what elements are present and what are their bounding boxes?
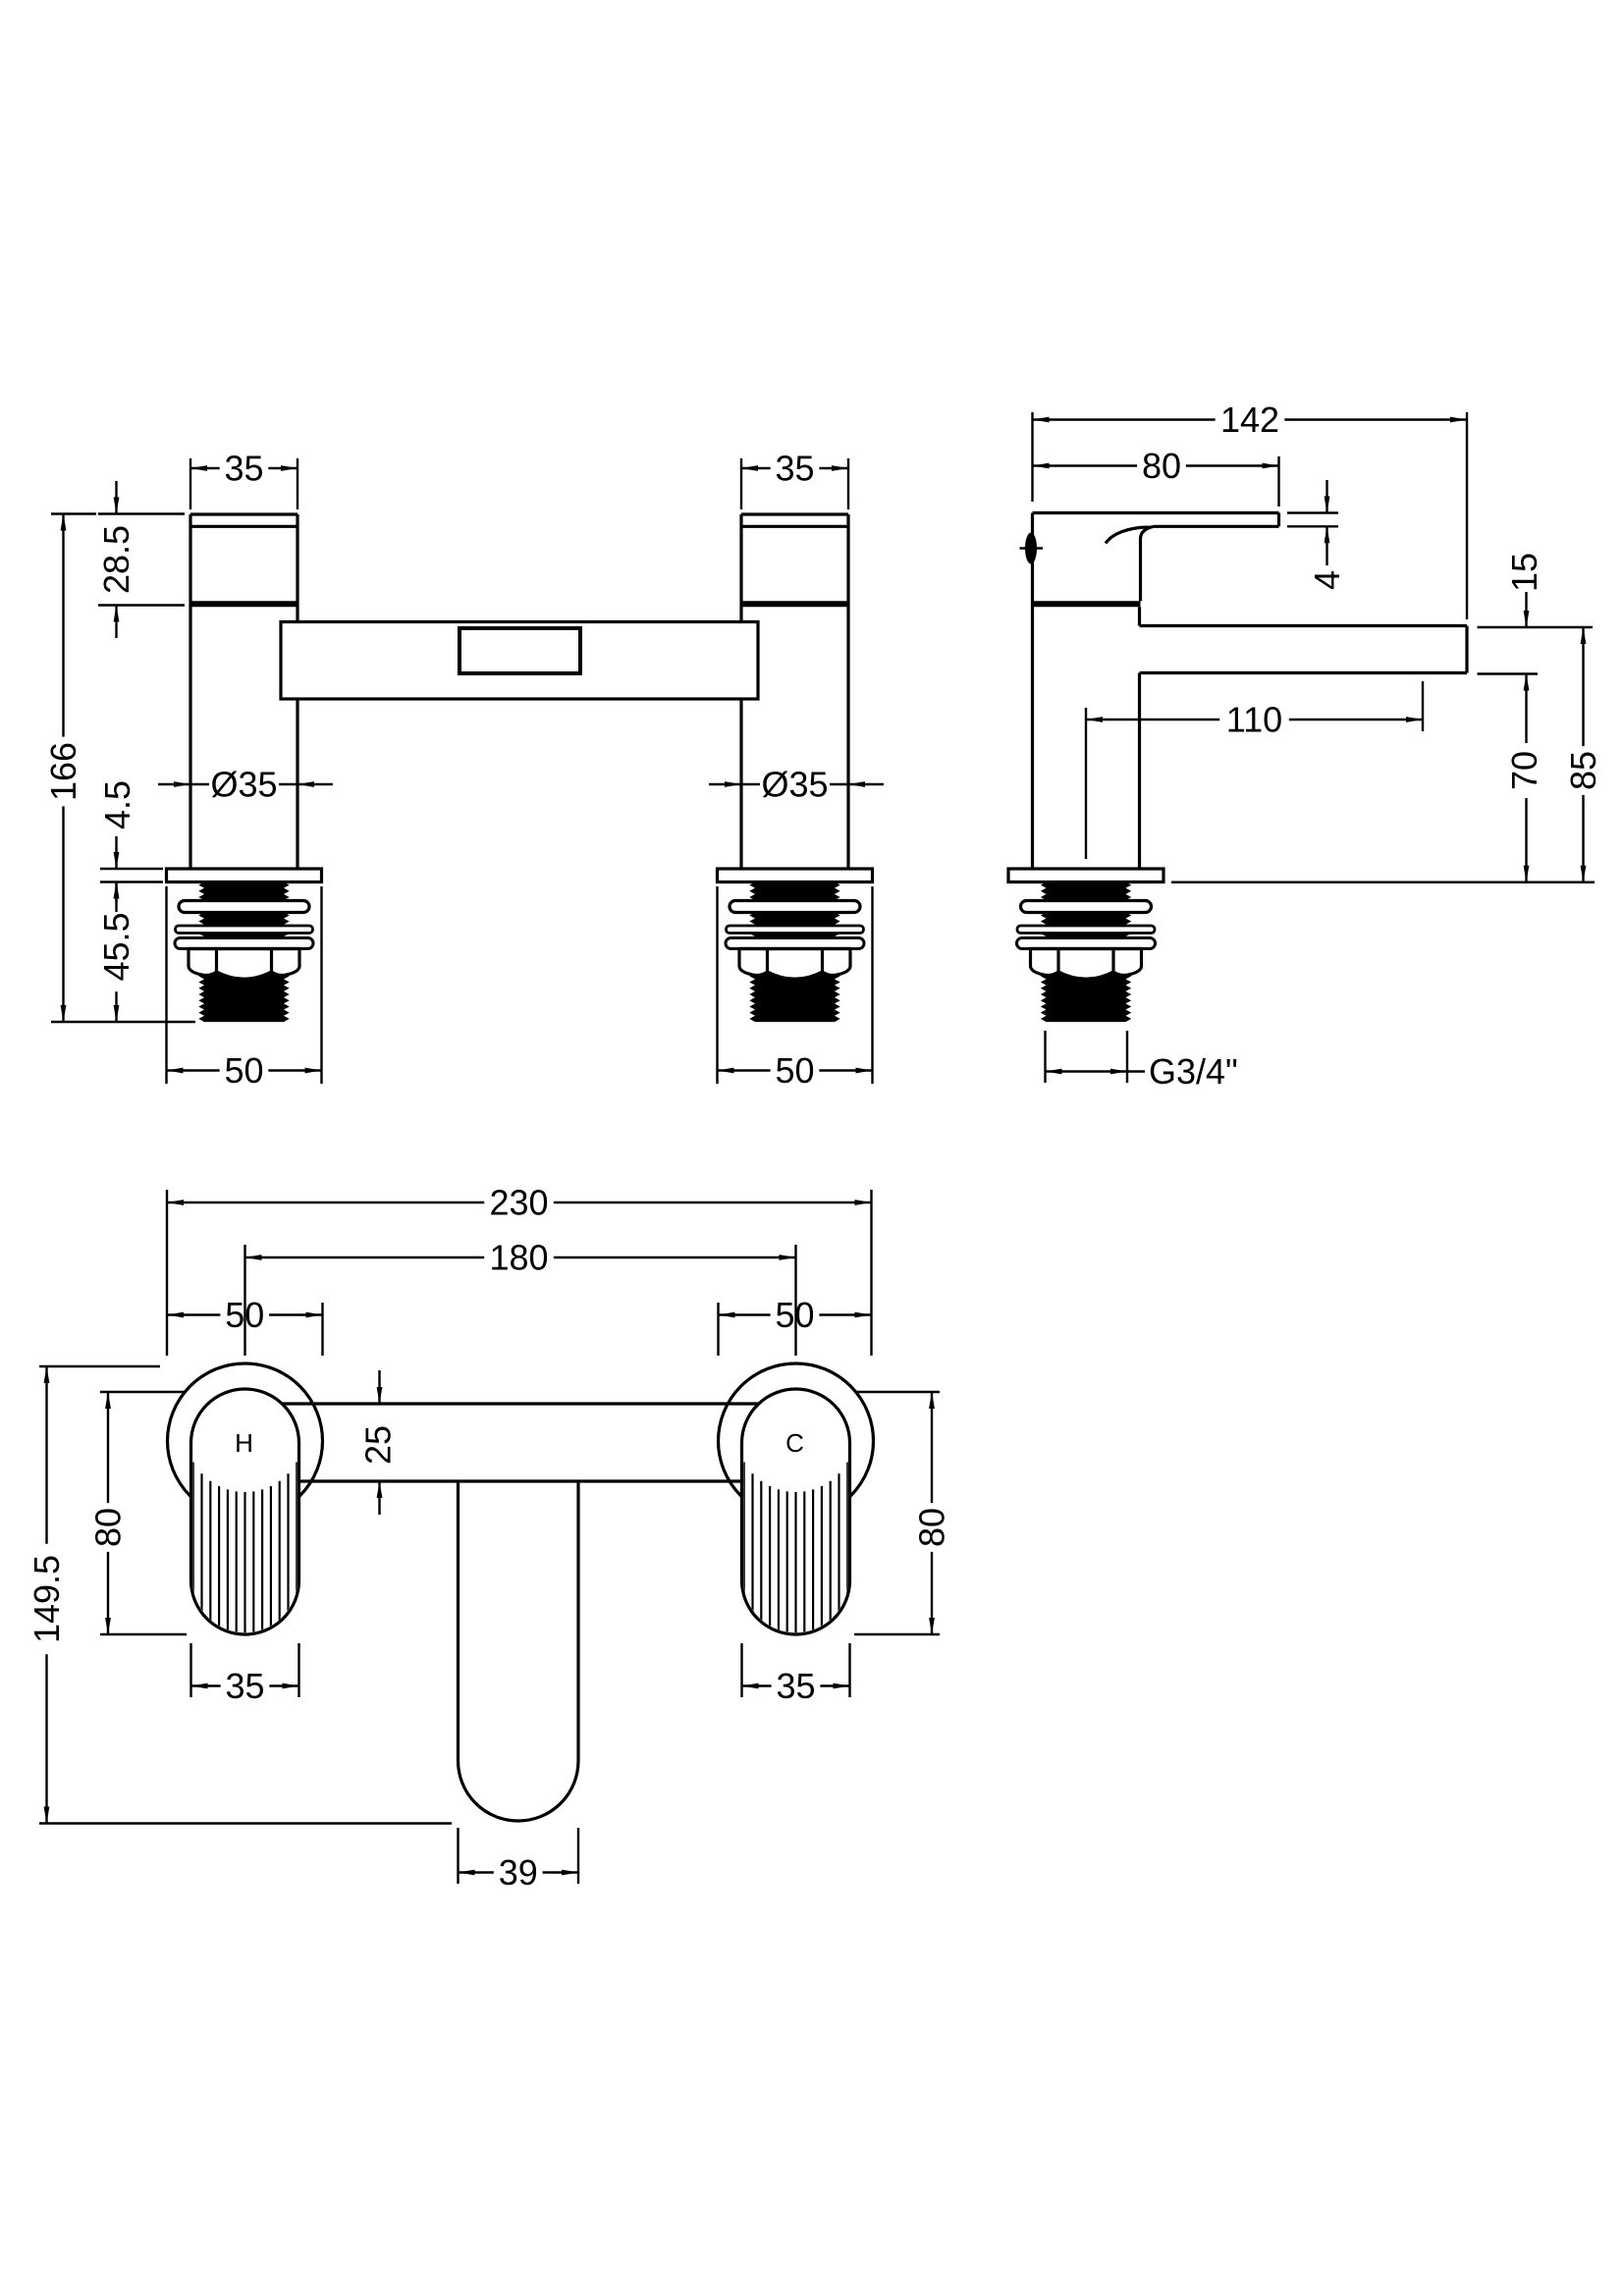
- svg-text:15: 15: [1504, 553, 1544, 592]
- svg-text:50: 50: [225, 1295, 264, 1335]
- svg-text:110: 110: [1226, 700, 1282, 740]
- svg-text:39: 39: [499, 1852, 538, 1893]
- svg-text:35: 35: [776, 1666, 815, 1706]
- svg-text:50: 50: [775, 1295, 814, 1335]
- svg-text:50: 50: [224, 1050, 263, 1091]
- svg-text:142: 142: [1220, 400, 1279, 440]
- svg-text:230: 230: [489, 1183, 548, 1223]
- svg-text:80: 80: [88, 1508, 129, 1547]
- svg-text:4.5: 4.5: [97, 780, 137, 829]
- svg-text:35: 35: [225, 1666, 264, 1706]
- svg-text:H: H: [235, 1428, 253, 1458]
- svg-text:45.5: 45.5: [96, 912, 136, 981]
- svg-text:80: 80: [912, 1508, 952, 1547]
- svg-text:G3/4": G3/4": [1149, 1051, 1238, 1092]
- svg-text:Ø35: Ø35: [761, 765, 828, 805]
- svg-text:C: C: [785, 1428, 804, 1458]
- svg-text:Ø35: Ø35: [210, 765, 277, 805]
- svg-text:80: 80: [1142, 446, 1181, 486]
- svg-text:28.5: 28.5: [96, 525, 136, 594]
- svg-text:25: 25: [358, 1425, 399, 1465]
- svg-text:180: 180: [489, 1238, 548, 1278]
- svg-text:35: 35: [224, 449, 263, 489]
- svg-text:85: 85: [1563, 751, 1603, 790]
- svg-text:35: 35: [775, 449, 814, 489]
- svg-text:50: 50: [775, 1050, 814, 1091]
- svg-text:166: 166: [43, 742, 83, 801]
- svg-text:70: 70: [1504, 751, 1544, 790]
- svg-text:4: 4: [1307, 570, 1347, 590]
- svg-text:149.5: 149.5: [27, 1555, 67, 1643]
